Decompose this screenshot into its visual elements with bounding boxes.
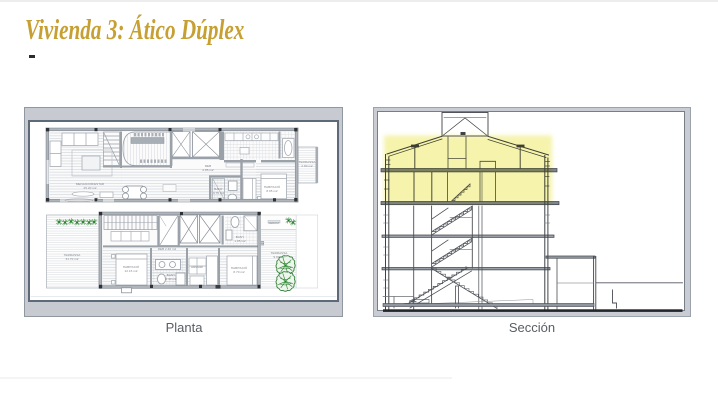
svg-text:REB 2.40 m2: REB 2.40 m2 — [158, 247, 177, 251]
svg-text:25.20 m2: 25.20 m2 — [84, 186, 97, 190]
svg-text:1.95 m2: 1.95 m2 — [234, 239, 245, 243]
svg-text:9.90 m2: 9.90 m2 — [273, 255, 284, 259]
svg-text:4.40 m2: 4.40 m2 — [165, 277, 176, 281]
svg-text:8.70 m2: 8.70 m2 — [233, 270, 244, 274]
svg-text:2.85 m2: 2.85 m2 — [202, 168, 213, 172]
svg-text:ARMARI: ARMARI — [191, 265, 203, 269]
svg-text:31.70 m2: 31.70 m2 — [66, 257, 79, 261]
svg-text:12.15 m2: 12.15 m2 — [125, 269, 138, 273]
svg-text:2.80 m2: 2.80 m2 — [301, 164, 312, 168]
svg-text:REBOST: REBOST — [269, 221, 280, 225]
svg-text:8.95 m2: 8.95 m2 — [266, 189, 277, 193]
svg-text:3.75 m2: 3.75 m2 — [213, 191, 224, 195]
